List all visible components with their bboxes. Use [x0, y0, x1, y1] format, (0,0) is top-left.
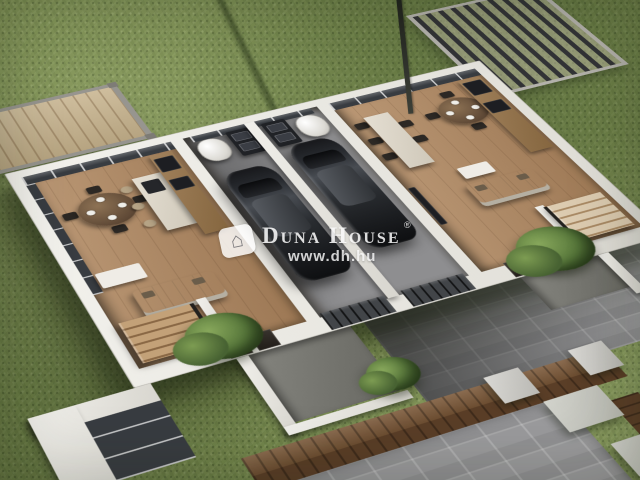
- plate: [117, 202, 128, 209]
- pillow: [141, 290, 156, 299]
- plate: [470, 104, 481, 110]
- hvac-vent: [230, 131, 253, 142]
- pillow: [516, 173, 531, 180]
- hvac-vent: [266, 122, 289, 133]
- dining-chair: [470, 122, 488, 131]
- plate: [95, 196, 106, 202]
- house-logo-icon: ⌂: [217, 223, 256, 259]
- coffee-table: [456, 161, 496, 179]
- watermark-brand: Duna House: [262, 224, 400, 248]
- plate: [85, 210, 96, 217]
- pillow: [191, 277, 206, 286]
- oven: [168, 175, 195, 190]
- plate: [445, 110, 456, 116]
- registered-mark: ®: [404, 220, 411, 230]
- pillow: [474, 184, 489, 191]
- plate: [450, 100, 461, 106]
- cooktop: [140, 178, 166, 194]
- real-estate-render: ⌂ Duna House ® www.dh.hu: [0, 0, 640, 480]
- car-roof: [314, 163, 379, 207]
- fridge: [153, 155, 182, 173]
- watermark: ⌂ Duna House ® www.dh.hu: [206, 218, 466, 274]
- coffee-table: [94, 263, 148, 289]
- watermark-url: www.dh.hu: [288, 248, 376, 265]
- hvac-vent: [274, 132, 297, 143]
- pergola-post: [106, 82, 118, 89]
- plate: [465, 115, 476, 121]
- plate: [107, 214, 118, 221]
